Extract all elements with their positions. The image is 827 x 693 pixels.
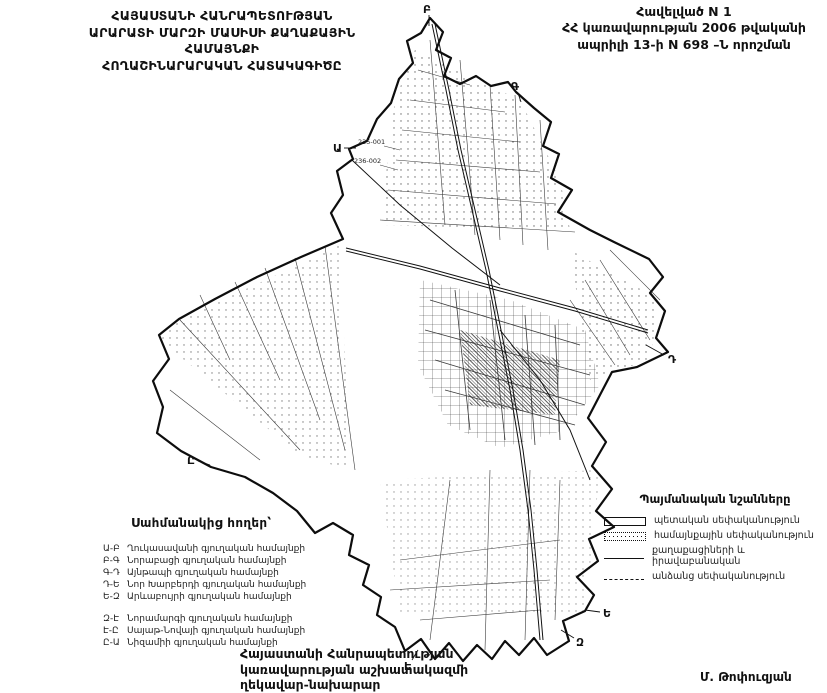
- title-line-3: ՀՈՂԱՇԻՆԱՐԱՐԱԿԱՆ ՀԱՏԱԿԱԳԻԾԸ: [52, 58, 392, 75]
- legend-item-legal-entities: անձանց սեփականություն: [604, 572, 826, 583]
- parcel-code-label: 236-002: [354, 157, 381, 165]
- boundary-point-e: Ե: [585, 607, 611, 620]
- svg-text:Ը: Ը: [187, 454, 195, 467]
- legend-bordering-lands: Սահմանակից հողեր՝ Ա-Բ Ղուկասավանի գյուղա…: [103, 516, 349, 650]
- border-segment: Դ-Ե Նոր Խարբերդի գյուղական համայնքի: [103, 580, 349, 591]
- boundary-point-z: Զ: [561, 630, 584, 649]
- bordering-lands-title: Սահմանակից հողեր՝: [131, 516, 349, 530]
- signature-block: Հայաստանի Հանրապետության կառավարության ա…: [240, 646, 468, 693]
- svg-text:Ա: Ա: [333, 142, 342, 155]
- legend-item-state: պետական սեփականություն: [604, 516, 826, 527]
- parcel-code-label: 235-001: [358, 138, 385, 146]
- annex-reference: Հավելված N 1 ՀՀ կառավարության 2006 թվակա…: [545, 4, 823, 53]
- dotted-box-symbol: [604, 532, 646, 541]
- annex-line-3: ապրիլի 13-ի N 698 –Ն որոշման: [545, 37, 823, 53]
- border-segment: Գ-Դ Այնթապի գյուղական համայնքի: [103, 568, 349, 579]
- legend-title: Պայմանական նշանները: [604, 492, 826, 506]
- signatory-name: Մ. Թոփուզյան: [700, 670, 792, 684]
- annex-line-1: Հավելված N 1: [545, 4, 823, 20]
- svg-text:Գ: Գ: [511, 80, 520, 93]
- svg-text:Բ: Բ: [423, 3, 431, 16]
- svg-text:Ե: Ե: [603, 607, 611, 620]
- border-segment: Ա-Բ Ղուկասավանի գյուղական համայնքի: [103, 544, 349, 555]
- svg-text:Դ: Դ: [668, 353, 677, 366]
- border-segment: Բ-Գ Նորաբացի գյուղական համայնքի: [103, 556, 349, 567]
- dashed-line-symbol: [604, 579, 644, 580]
- annex-line-2: ՀՀ կառավարության 2006 թվականի: [545, 20, 823, 36]
- signature-line-1: Հայաստանի Հանրապետության: [240, 646, 468, 662]
- map-title: ՀԱՅԱՍՏԱՆԻ ՀԱՆՐԱՊԵՏՈՒԹՅԱՆ ԱՐԱՐԱՏԻ ՄԱՐԶԻ Մ…: [52, 8, 392, 74]
- border-segment: Է-Ը Սայաթ-Նովայի գյուղական համայնքի: [103, 626, 349, 637]
- legend-conventional-signs: Պայմանական նշանները պետական սեփականությո…: [604, 492, 826, 587]
- signature-line-3: ղեկավար-նախարար: [240, 677, 468, 693]
- legend-item-community: համայնքային սեփականություն: [604, 531, 826, 542]
- border-segment: Ե-Զ Արևաբույրի գյուղական համայնքի: [103, 592, 349, 603]
- solid-line-symbol: [604, 558, 644, 559]
- title-line-2: ԱՐԱՐԱՏԻ ՄԱՐԶԻ ՄԱՍԻՍԻ ՔԱՂԱՔԱՅԻՆ ՀԱՄԱՅՆՔԻ: [52, 25, 392, 58]
- border-segment: Զ-Է Նորամարգի գյուղական համայնքի: [103, 614, 349, 625]
- title-line-1: ՀԱՅԱՍՏԱՆԻ ՀԱՆՐԱՊԵՏՈՒԹՅԱՆ: [52, 8, 392, 25]
- legend-item-citizens: քաղաքացիների և իրավաբանական: [604, 546, 826, 568]
- svg-text:Զ: Զ: [576, 636, 584, 649]
- solid-box-symbol: [604, 517, 646, 526]
- signature-line-2: կառավարության աշխատակազմի: [240, 662, 468, 678]
